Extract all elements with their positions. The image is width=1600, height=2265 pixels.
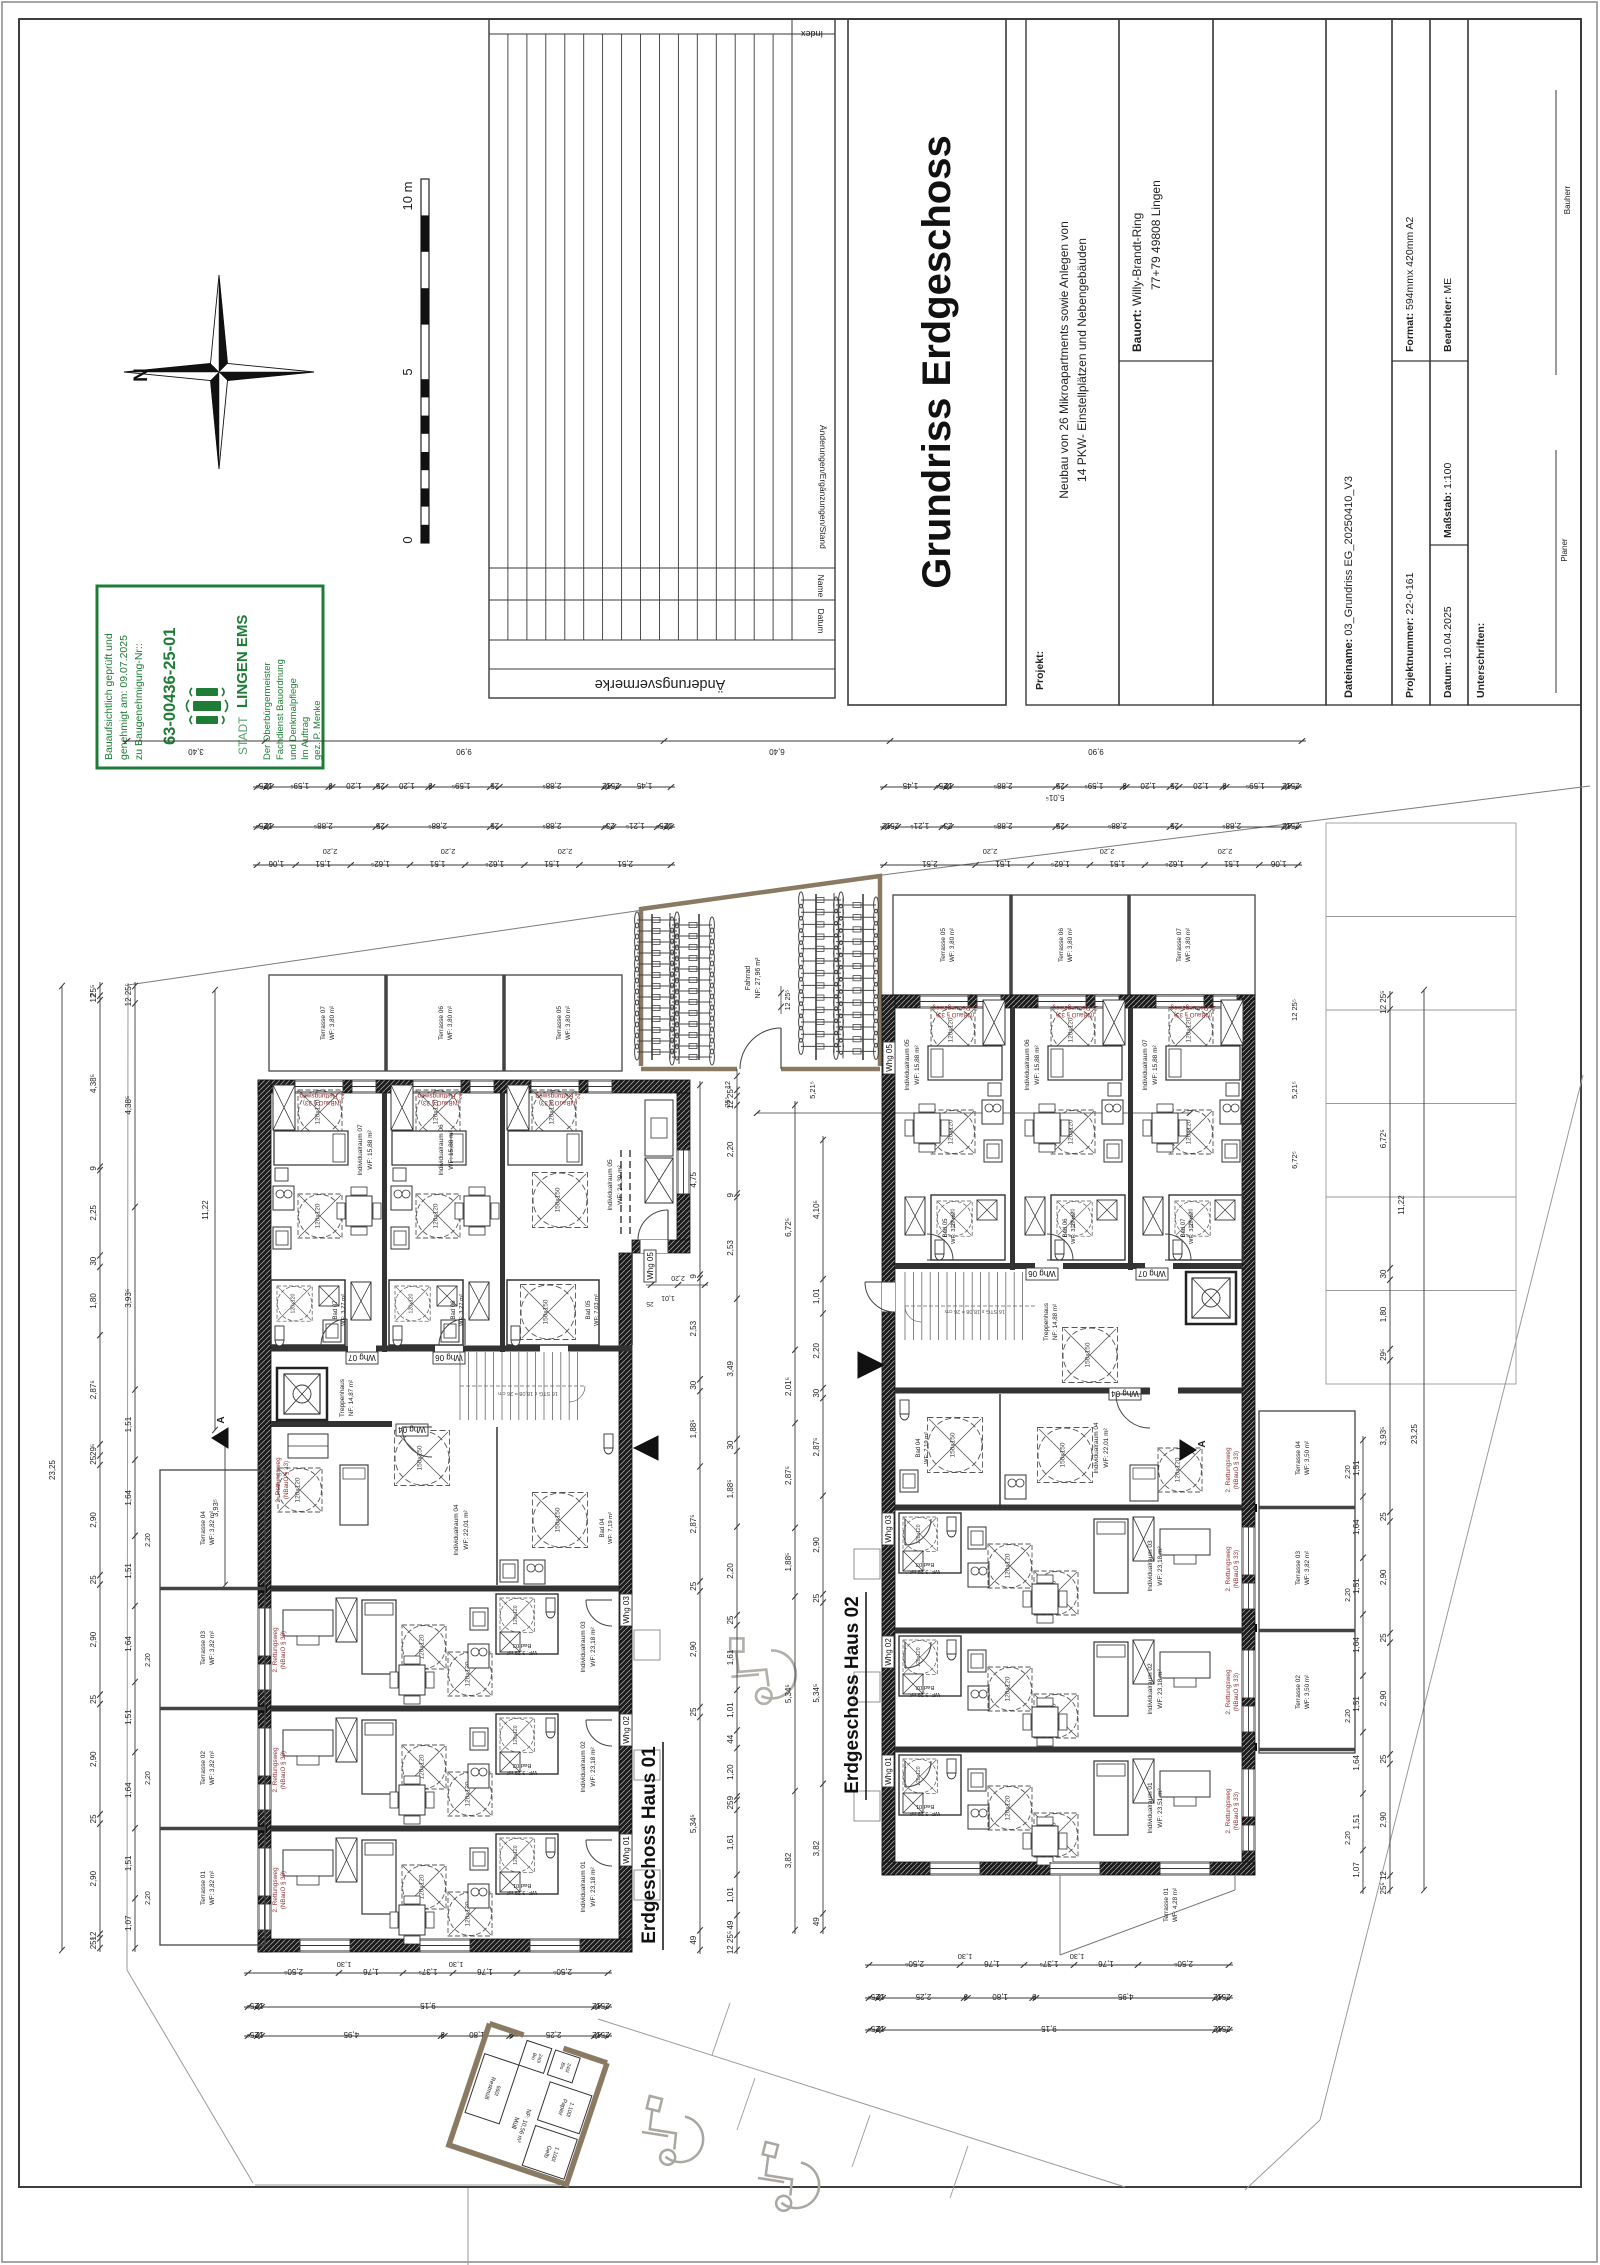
svg-text:2,20: 2,20: [323, 847, 338, 856]
svg-text:12 25⁵: 12 25⁵: [1379, 991, 1388, 1014]
svg-text:Name: Name: [816, 575, 826, 598]
svg-text:WF: 15,88 m²: WF: 15,88 m²: [448, 1129, 455, 1169]
svg-text:Erdgeschoss Haus 01: Erdgeschoss Haus 01: [639, 1746, 660, 1944]
svg-text:1,80: 1,80: [89, 1293, 98, 1309]
svg-text:6,72⁵: 6,72⁵: [1379, 1129, 1388, 1148]
svg-text:Individualraum 02: Individualraum 02: [1147, 1663, 1154, 1715]
svg-text:25: 25: [1379, 1633, 1388, 1642]
svg-text:12 25⁵: 12 25⁵: [785, 990, 792, 1011]
svg-text:3,49: 3,49: [726, 1360, 735, 1376]
svg-text:(NBauO § 33): (NBauO § 33): [283, 1461, 290, 1499]
svg-text:2,20: 2,20: [1345, 1709, 1352, 1723]
svg-text:1,76: 1,76: [363, 1967, 379, 1976]
svg-text:25: 25: [89, 1814, 98, 1823]
svg-text:2,20: 2,20: [145, 1771, 152, 1785]
svg-text:1,51: 1,51: [1352, 1460, 1361, 1476]
svg-text:12: 12: [264, 821, 273, 830]
svg-text:(NBauO § 33): (NBauO § 33): [303, 1099, 341, 1106]
svg-text:2,20: 2,20: [1345, 1831, 1352, 1845]
svg-text:2. Rettungsweg: 2. Rettungsweg: [535, 1092, 581, 1099]
svg-text:2,88⁵: 2,88⁵: [994, 821, 1013, 830]
svg-text:5,34⁵: 5,34⁵: [689, 1814, 698, 1833]
svg-text:1,88⁵: 1,88⁵: [689, 1419, 698, 1438]
svg-text:12: 12: [664, 821, 673, 830]
svg-text:Individualraum 07: Individualraum 07: [1142, 1039, 1149, 1091]
svg-text:25⁵ 12: 25⁵ 12: [1379, 1871, 1388, 1895]
svg-text:5: 5: [400, 368, 415, 375]
svg-text:WF: 23,18 m²: WF: 23,18 m²: [1157, 1668, 1164, 1708]
svg-text:25⁵: 25⁵: [597, 2001, 609, 2010]
svg-text:9: 9: [689, 1274, 698, 1279]
svg-text:4,95: 4,95: [1117, 1992, 1133, 2001]
svg-text:Änderungen/Ergänzungen/Stand: Änderungen/Ergänzungen/Stand: [818, 425, 828, 549]
svg-text:2. Rettungsweg: 2. Rettungsweg: [1052, 1004, 1098, 1011]
svg-text:2. Rettungsweg: 2. Rettungsweg: [1225, 1788, 1232, 1834]
svg-text:Individualraum 02: Individualraum 02: [580, 1741, 587, 1793]
svg-text:Terrasse 07: Terrasse 07: [320, 1006, 327, 1040]
svg-text:1,61: 1,61: [726, 1649, 735, 1665]
svg-text:2,88⁵: 2,88⁵: [1222, 821, 1241, 830]
svg-text:5,34⁵: 5,34⁵: [812, 1684, 821, 1703]
svg-text:9: 9: [1222, 781, 1227, 790]
svg-text:30: 30: [689, 1380, 698, 1389]
svg-text:2,88⁵: 2,88⁵: [428, 821, 447, 830]
svg-text:25⁵: 25⁵: [1218, 1992, 1230, 2001]
svg-text:6,40: 6,40: [769, 747, 785, 756]
svg-text:1,64: 1,64: [1352, 1754, 1361, 1770]
svg-text:Individualraum 01: Individualraum 01: [1147, 1782, 1154, 1834]
svg-text:25: 25: [726, 1615, 735, 1624]
svg-text:WF: 22,01 m²: WF: 22,01 m²: [463, 1509, 470, 1549]
svg-text:23,25: 23,25: [1410, 1423, 1419, 1444]
svg-text:Bauherr: Bauherr: [1563, 185, 1572, 214]
svg-text:1,20: 1,20: [398, 781, 414, 790]
svg-text:STADT: STADT: [236, 716, 250, 755]
svg-text:2,90: 2,90: [89, 1751, 98, 1767]
svg-text:WF: 4,28 m²: WF: 4,28 m²: [1172, 1888, 1179, 1922]
svg-text:WF: 3,29 m²: WF: 3,29 m²: [507, 1649, 537, 1655]
svg-text:Maßstab: 1:100: Maßstab: 1:100: [1442, 463, 1454, 538]
svg-text:49: 49: [689, 1935, 698, 1944]
svg-text:2,53: 2,53: [689, 1320, 698, 1336]
svg-text:Fahrrad: Fahrrad: [745, 966, 752, 991]
svg-text:44: 44: [726, 1734, 735, 1743]
svg-text:2,51: 2,51: [617, 859, 633, 868]
svg-text:WF: 3,29 m²: WF: 3,29 m²: [910, 1691, 940, 1697]
svg-text:12: 12: [943, 781, 952, 790]
svg-text:1,07: 1,07: [1352, 1862, 1361, 1878]
svg-text:Bad 01: Bad 01: [916, 1803, 934, 1809]
svg-text:1,64: 1,64: [124, 1636, 133, 1652]
svg-text:12 25⁵: 12 25⁵: [1290, 999, 1299, 1021]
svg-text:49: 49: [726, 1920, 735, 1929]
svg-text:WF: 24,39 m²: WF: 24,39 m²: [617, 1164, 624, 1204]
svg-text:1,51: 1,51: [544, 859, 560, 868]
svg-text:25: 25: [375, 781, 384, 790]
svg-text:Individualraum 04: Individualraum 04: [453, 1504, 460, 1556]
svg-text:Neubau von 26 Mikroapartments: Neubau von 26 Mikroapartments sowie Anle…: [1057, 221, 1071, 499]
svg-text:25⁵: 25⁵: [887, 821, 899, 830]
svg-text:NF: 14,88 m²: NF: 14,88 m²: [1052, 1304, 1059, 1340]
svg-text:1,30: 1,30: [449, 1960, 464, 1969]
svg-text:9: 9: [963, 1992, 968, 2001]
svg-text:Whg 02: Whg 02: [884, 1638, 893, 1666]
svg-text:Projekt:: Projekt:: [1034, 651, 1046, 690]
svg-text:Whg 06: Whg 06: [1028, 1269, 1056, 1278]
svg-text:2,88⁵: 2,88⁵: [542, 821, 561, 830]
svg-text:Whg 05: Whg 05: [885, 1044, 894, 1072]
svg-text:WF: 7,19 m²: WF: 7,19 m²: [608, 1512, 614, 1544]
svg-text:Terrasse 01: Terrasse 01: [1163, 1888, 1170, 1922]
svg-text:Bauaufsichtlich geprüft und: Bauaufsichtlich geprüft und: [103, 633, 115, 760]
svg-text:3,82: 3,82: [812, 1840, 821, 1856]
svg-text:gez. P. Menke: gez. P. Menke: [312, 700, 323, 760]
svg-text:2,20: 2,20: [1345, 1588, 1352, 1602]
svg-text:14 PKW- Einstellplätzen und Ne: 14 PKW- Einstellplätzen und Nebengebäude…: [1075, 238, 1089, 482]
svg-text:25: 25: [1055, 821, 1064, 830]
svg-text:2. Rettungsweg: 2. Rettungsweg: [275, 1457, 282, 1503]
svg-text:2,25: 2,25: [545, 2030, 561, 2039]
svg-text:25: 25: [812, 1593, 821, 1602]
svg-text:1,01: 1,01: [812, 1288, 821, 1304]
svg-text:1,06: 1,06: [1270, 859, 1286, 868]
svg-text:16 STG x 18,08 = 26 cm: 16 STG x 18,08 = 26 cm: [498, 1390, 558, 1396]
svg-text:Individualraum 05: Individualraum 05: [904, 1039, 911, 1091]
svg-text:2. Rettungsweg: 2. Rettungsweg: [272, 1747, 279, 1793]
svg-text:Individualraum 06: Individualraum 06: [438, 1124, 445, 1176]
svg-text:1,62⁵: 1,62⁵: [1051, 859, 1070, 868]
svg-text:1,20: 1,20: [346, 781, 362, 790]
svg-text:1,20: 1,20: [1193, 781, 1209, 790]
svg-text:2,90: 2,90: [1379, 1811, 1388, 1827]
svg-text:WF: 3,82 m²: WF: 3,82 m²: [209, 1511, 216, 1545]
svg-text:25⁵: 25⁵: [1287, 821, 1299, 830]
svg-text:Bad 03: Bad 03: [513, 1642, 531, 1648]
svg-text:A: A: [1197, 1440, 1208, 1447]
svg-text:WF: 3,82 m²: WF: 3,82 m²: [1304, 1551, 1311, 1585]
svg-text:Terrasse 06: Terrasse 06: [1058, 928, 1065, 962]
svg-text:Individualraum 01: Individualraum 01: [580, 1861, 587, 1913]
svg-text:2,90: 2,90: [89, 1870, 98, 1886]
svg-text:9,90: 9,90: [456, 747, 472, 756]
svg-text:1,64: 1,64: [124, 1489, 133, 1505]
svg-text:1,76: 1,76: [477, 1967, 493, 1976]
svg-text:1,51: 1,51: [429, 859, 445, 868]
svg-text:zu Baugenehmigung-Nr::: zu Baugenehmigung-Nr::: [133, 643, 145, 760]
svg-text:25: 25: [1379, 1512, 1388, 1521]
svg-text:2. Rettungsweg: 2. Rettungsweg: [1225, 1669, 1232, 1715]
svg-text:1,30: 1,30: [1070, 1952, 1085, 1961]
svg-text:1,01: 1,01: [726, 1887, 735, 1903]
svg-text:4,38⁵: 4,38⁵: [89, 1074, 98, 1093]
svg-text:Bad 01: Bad 01: [513, 1882, 531, 1888]
svg-text:WF: 3,80 m²: WF: 3,80 m²: [447, 1006, 454, 1040]
svg-text:1,30: 1,30: [337, 1960, 352, 1969]
svg-text:Whg 05: Whg 05: [646, 1252, 655, 1280]
svg-text:Grundriss Erdgeschoss: Grundriss Erdgeschoss: [915, 135, 959, 588]
svg-text:WF: 3,29 m²: WF: 3,29 m²: [507, 1769, 537, 1775]
svg-text:Terrasse 07: Terrasse 07: [1176, 928, 1183, 962]
svg-text:Unterschriften:: Unterschriften:: [1475, 623, 1487, 698]
svg-text:2,20: 2,20: [1218, 847, 1233, 856]
svg-text:Datum: Datum: [816, 608, 826, 633]
svg-text:2,90: 2,90: [89, 1631, 98, 1647]
svg-text:Terrasse 03: Terrasse 03: [1295, 1551, 1302, 1585]
svg-text:2,53: 2,53: [726, 1240, 735, 1256]
svg-text:WF: 15,88 m²: WF: 15,88 m²: [367, 1129, 374, 1169]
svg-text:49: 49: [812, 1917, 821, 1926]
svg-text:Individualraum 05: Individualraum 05: [607, 1159, 614, 1211]
svg-text:4,95: 4,95: [343, 2030, 359, 2039]
svg-text:2,20: 2,20: [145, 1533, 152, 1547]
svg-text:WF: 23,51 m²: WF: 23,51 m²: [1157, 1787, 1164, 1827]
svg-text:Änderungsvermerke: Änderungsvermerke: [595, 676, 726, 693]
svg-text:12 25⁵: 12 25⁵: [726, 1086, 735, 1109]
svg-text:Terrasse 03: Terrasse 03: [200, 1631, 207, 1665]
svg-text:WF: 3,27 m²: WF: 3,27 m²: [459, 1294, 465, 1326]
svg-text:WF: 23,18 m²: WF: 23,18 m²: [590, 1626, 597, 1666]
svg-text:2,88⁵: 2,88⁵: [994, 781, 1013, 790]
svg-text:2,20: 2,20: [145, 1653, 152, 1667]
svg-text:N: N: [131, 368, 152, 382]
svg-text:Format: 594mmx 420mm A2: Format: 594mmx 420mm A2: [1404, 216, 1416, 352]
svg-text:2. Rettungsweg: 2. Rettungsweg: [1225, 1447, 1232, 1493]
svg-text:(NBauO § 33): (NBauO § 33): [421, 1099, 459, 1106]
svg-text:Whg 07: Whg 07: [1138, 1269, 1166, 1278]
svg-text:Bad 03: Bad 03: [916, 1561, 934, 1567]
svg-text:(NBauO § 33): (NBauO § 33): [1056, 1011, 1094, 1018]
svg-text:1,51: 1,51: [995, 859, 1011, 868]
svg-text:(NBauO § 33): (NBauO § 33): [280, 1631, 287, 1669]
svg-text:Bearbeiter: ME: Bearbeiter: ME: [1442, 278, 1454, 352]
svg-text:1,80: 1,80: [992, 1992, 1008, 2001]
svg-text:WF: 3,50 m²: WF: 3,50 m²: [1304, 1441, 1311, 1475]
svg-text:1,59⁵: 1,59⁵: [1246, 781, 1265, 790]
svg-text:WF: 15,88 m²: WF: 15,88 m²: [914, 1044, 921, 1084]
svg-text:Bad 05: Bad 05: [943, 1218, 949, 1238]
svg-text:2,50⁵: 2,50⁵: [905, 1959, 924, 1968]
svg-text:2. Rettungsweg: 2. Rettungsweg: [299, 1092, 345, 1099]
svg-text:2,01⁵: 2,01⁵: [784, 1377, 793, 1396]
svg-text:5,01⁵: 5,01⁵: [1046, 793, 1065, 802]
svg-text:25⁵: 25⁵: [1218, 2024, 1230, 2033]
svg-text:1,64: 1,64: [1352, 1519, 1361, 1535]
svg-text:Index: Index: [800, 29, 823, 39]
svg-text:Individualraum 06: Individualraum 06: [1024, 1039, 1031, 1091]
svg-text:Bad 04: Bad 04: [916, 1438, 922, 1458]
svg-text:1,51: 1,51: [124, 1563, 133, 1579]
svg-text:Bad 07: Bad 07: [1181, 1218, 1187, 1238]
svg-text:WF: 23,18 m²: WF: 23,18 m²: [590, 1746, 597, 1786]
svg-text:10 m: 10 m: [400, 182, 415, 211]
svg-text:2. Rettungsweg: 2. Rettungsweg: [417, 1092, 463, 1099]
svg-text:2,87⁵: 2,87⁵: [89, 1380, 98, 1399]
svg-text:1,59⁵: 1,59⁵: [452, 781, 471, 790]
svg-text:9: 9: [726, 1193, 735, 1198]
svg-text:Bad 06: Bad 06: [451, 1300, 457, 1320]
svg-text:Bad 07: Bad 07: [333, 1300, 339, 1320]
svg-text:2,88⁵: 2,88⁵: [1108, 821, 1127, 830]
svg-text:29⁵: 29⁵: [1379, 1349, 1388, 1361]
svg-text:3,93⁵: 3,93⁵: [124, 1289, 133, 1308]
svg-text:WF: 3,29 m²: WF: 3,29 m²: [910, 1810, 940, 1816]
svg-text:12: 12: [876, 2024, 885, 2033]
svg-text:Terrasse 06: Terrasse 06: [438, 1006, 445, 1040]
svg-text:(NBauO § 33): (NBauO § 33): [1174, 1011, 1212, 1018]
svg-text:WF: 15,88 m²: WF: 15,88 m²: [1034, 1044, 1041, 1084]
svg-text:Treppenhaus: Treppenhaus: [1043, 1302, 1050, 1341]
svg-text:Whg 02: Whg 02: [622, 1716, 631, 1744]
svg-text:1,51: 1,51: [1109, 859, 1125, 868]
svg-text:1,51: 1,51: [1352, 1813, 1361, 1829]
svg-text:9: 9: [428, 781, 433, 790]
svg-text:Individualraum 03: Individualraum 03: [580, 1621, 587, 1673]
svg-text:(NBauO § 33): (NBauO § 33): [1233, 1451, 1240, 1489]
svg-text:3,82: 3,82: [784, 1852, 793, 1868]
svg-text:23⁵: 23⁵: [603, 821, 615, 830]
svg-text:2. Rettungsweg: 2. Rettungsweg: [272, 1867, 279, 1913]
svg-text:1,37⁵: 1,37⁵: [1040, 1959, 1059, 1968]
svg-text:1,51: 1,51: [315, 859, 331, 868]
svg-text:2. Rettungsweg: 2. Rettungsweg: [1225, 1546, 1232, 1592]
svg-text:9: 9: [726, 1795, 735, 1800]
svg-text:WF: 3,82 m²: WF: 3,82 m²: [209, 1871, 216, 1905]
svg-text:2,20: 2,20: [1100, 847, 1115, 856]
svg-text:1,51: 1,51: [1223, 859, 1239, 868]
svg-text:WF: 3,80 m²: WF: 3,80 m²: [1185, 928, 1192, 962]
svg-text:25: 25: [689, 1707, 698, 1716]
svg-text:2. Rettungsweg: 2. Rettungsweg: [932, 1004, 978, 1011]
svg-text:WF: 3,82 m²: WF: 3,82 m²: [209, 1631, 216, 1665]
svg-text:30: 30: [1379, 1269, 1388, 1278]
svg-text:WF: 23,18 m²: WF: 23,18 m²: [590, 1866, 597, 1906]
svg-text:11,22: 11,22: [1397, 1195, 1406, 1215]
svg-text:2,87⁵: 2,87⁵: [784, 1466, 793, 1485]
svg-text:12: 12: [254, 2030, 263, 2039]
svg-text:25: 25: [490, 781, 499, 790]
svg-text:25: 25: [646, 1300, 654, 1307]
svg-text:2,51: 2,51: [921, 859, 937, 868]
svg-text:2,25: 2,25: [915, 1992, 931, 2001]
svg-text:9: 9: [1032, 1992, 1037, 2001]
svg-text:9,15: 9,15: [420, 2001, 436, 2010]
svg-text:1,64: 1,64: [1352, 1637, 1361, 1653]
svg-text:Der Oberbürgermeister: Der Oberbürgermeister: [262, 662, 273, 760]
svg-text:1,45: 1,45: [636, 781, 652, 790]
svg-text:1,51: 1,51: [124, 1709, 133, 1725]
svg-text:1,76: 1,76: [1098, 1959, 1114, 1968]
svg-text:1,76: 1,76: [984, 1959, 1000, 1968]
svg-text:2,25: 2,25: [89, 1204, 98, 1220]
svg-text:77+79 49808 Lingen: 77+79 49808 Lingen: [1149, 180, 1163, 290]
svg-text:Whg 03: Whg 03: [622, 1596, 631, 1624]
svg-text:25: 25: [689, 1581, 698, 1590]
svg-text:Terrasse 05: Terrasse 05: [940, 928, 947, 962]
svg-text:2,87⁵: 2,87⁵: [812, 1438, 821, 1457]
svg-text:1,51: 1,51: [1352, 1696, 1361, 1712]
svg-text:2. Rettungsweg: 2. Rettungsweg: [1170, 1004, 1216, 1011]
svg-text:25: 25: [375, 821, 384, 830]
svg-text:2,88⁵: 2,88⁵: [314, 821, 333, 830]
svg-text:1,62⁵: 1,62⁵: [485, 859, 504, 868]
svg-text:(NBauO § 33): (NBauO § 33): [280, 1751, 287, 1789]
svg-text:29⁵: 29⁵: [89, 1444, 98, 1456]
svg-text:12: 12: [89, 993, 98, 1002]
svg-text:WF: 23,18 m²: WF: 23,18 m²: [1157, 1545, 1164, 1585]
svg-text:1,80: 1,80: [1379, 1306, 1388, 1322]
svg-text:2,20: 2,20: [812, 1342, 821, 1358]
svg-text:12 25⁵: 12 25⁵: [124, 983, 133, 1006]
svg-text:NF: 27,96 m²: NF: 27,96 m²: [755, 957, 762, 999]
svg-text:25: 25: [89, 1575, 98, 1584]
svg-text:WF: 3,50 m²: WF: 3,50 m²: [1304, 1675, 1311, 1709]
svg-text:WF: 7,03 m²: WF: 7,03 m²: [594, 1294, 600, 1326]
svg-text:25: 25: [89, 1694, 98, 1703]
svg-text:1,01: 1,01: [726, 1702, 735, 1718]
svg-text:1,30: 1,30: [958, 1952, 973, 1961]
svg-text:9: 9: [328, 781, 333, 790]
svg-text:1,51: 1,51: [124, 1416, 133, 1432]
svg-text:Whg 01: Whg 01: [884, 1757, 893, 1785]
svg-text:Planer: Planer: [1560, 538, 1569, 561]
svg-text:2,20: 2,20: [983, 847, 998, 856]
svg-text:2,88⁵: 2,88⁵: [542, 781, 561, 790]
svg-text:23⁵: 23⁵: [940, 821, 952, 830]
svg-text:6,72⁵: 6,72⁵: [1290, 1151, 1299, 1169]
svg-text:0: 0: [400, 536, 415, 543]
svg-text:WF: 3,80 m²: WF: 3,80 m²: [949, 928, 956, 962]
svg-text:Terrasse 01: Terrasse 01: [200, 1871, 207, 1905]
svg-text:4,38⁵: 4,38⁵: [124, 1096, 133, 1115]
svg-text:WF: 3,82 m²: WF: 3,82 m²: [209, 1751, 216, 1785]
svg-text:25: 25: [1379, 1754, 1388, 1763]
svg-text:25: 25: [1055, 781, 1064, 790]
svg-text:Whg 03: Whg 03: [884, 1515, 893, 1543]
svg-text:Individualraum 04: Individualraum 04: [1093, 1422, 1100, 1474]
svg-text:WF: 3,27 m²: WF: 3,27 m²: [341, 1294, 347, 1326]
svg-text:(NBauO § 33): (NBauO § 33): [1233, 1550, 1240, 1588]
svg-text:(NBauO § 33): (NBauO § 33): [280, 1871, 287, 1909]
svg-text:Bad 06: Bad 06: [1063, 1218, 1069, 1238]
svg-text:2. Rettungsweg: 2. Rettungsweg: [272, 1627, 279, 1673]
svg-text:Whg 07: Whg 07: [348, 1353, 376, 1362]
svg-text:1,07: 1,07: [124, 1915, 133, 1931]
svg-text:1,59⁵: 1,59⁵: [290, 781, 309, 790]
svg-text:2,50⁵: 2,50⁵: [1174, 1959, 1193, 1968]
svg-text:30: 30: [89, 1256, 98, 1265]
svg-text:1,59⁵: 1,59⁵: [1084, 781, 1103, 790]
svg-text:9,90: 9,90: [1088, 747, 1104, 756]
svg-text:Individualraum 07: Individualraum 07: [357, 1124, 364, 1176]
svg-text:2,20: 2,20: [558, 847, 573, 856]
svg-text:1,51: 1,51: [1352, 1578, 1361, 1594]
svg-text:12: 12: [264, 781, 273, 790]
svg-text:2,90: 2,90: [89, 1512, 98, 1528]
svg-text:(NBauO § 33): (NBauO § 33): [1233, 1673, 1240, 1711]
svg-text:WF: 3,27 m²: WF: 3,27 m²: [951, 1212, 957, 1244]
svg-text:(NBauO § 33): (NBauO § 33): [1233, 1792, 1240, 1830]
svg-text:2,20: 2,20: [726, 1141, 735, 1157]
svg-text:1,64: 1,64: [124, 1782, 133, 1798]
svg-text:Bad 02: Bad 02: [513, 1762, 531, 1768]
svg-text:25: 25: [490, 821, 499, 830]
svg-text:9,15: 9,15: [1041, 2024, 1057, 2033]
svg-text:WF: 15,88 m²: WF: 15,88 m²: [1152, 1044, 1159, 1084]
svg-text:Whg 06: Whg 06: [435, 1353, 463, 1362]
svg-text:1,88⁵: 1,88⁵: [726, 1479, 735, 1498]
svg-text:1,06: 1,06: [268, 859, 284, 868]
svg-text:2,90: 2,90: [1379, 1690, 1388, 1706]
